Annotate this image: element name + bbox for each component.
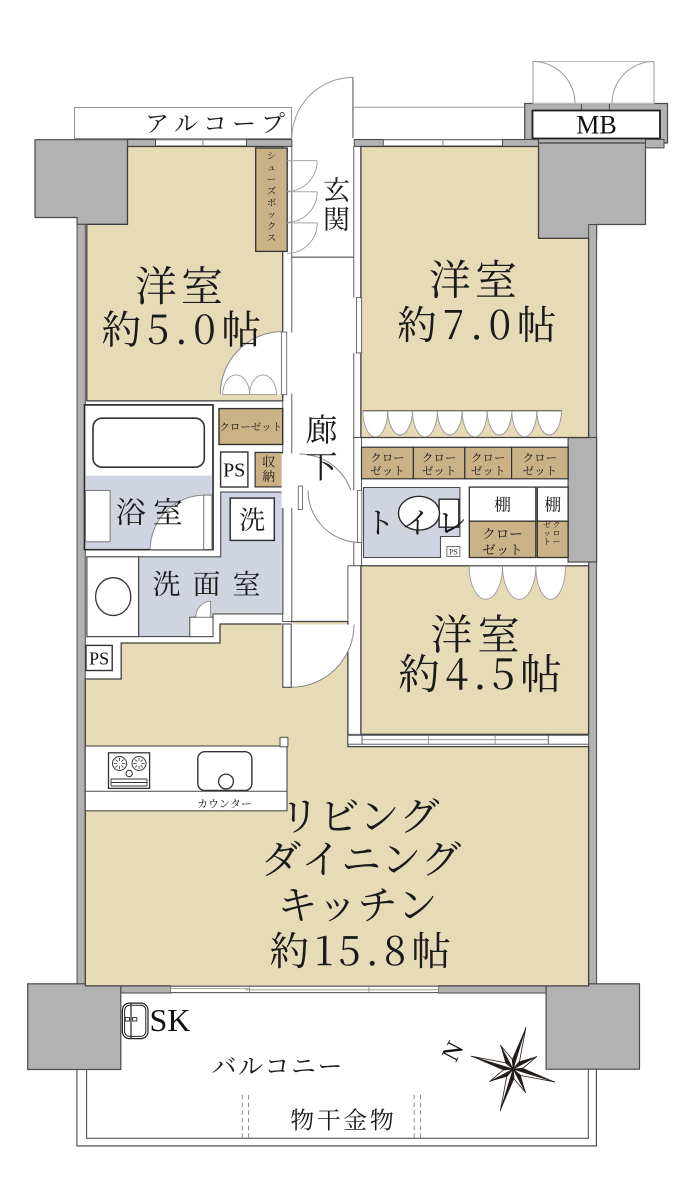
svg-text:PS: PS bbox=[449, 547, 458, 556]
svg-text:PS: PS bbox=[89, 649, 109, 669]
svg-text:MB: MB bbox=[576, 111, 616, 140]
svg-text:SK: SK bbox=[150, 1002, 191, 1038]
svg-text:PS: PS bbox=[223, 460, 245, 482]
